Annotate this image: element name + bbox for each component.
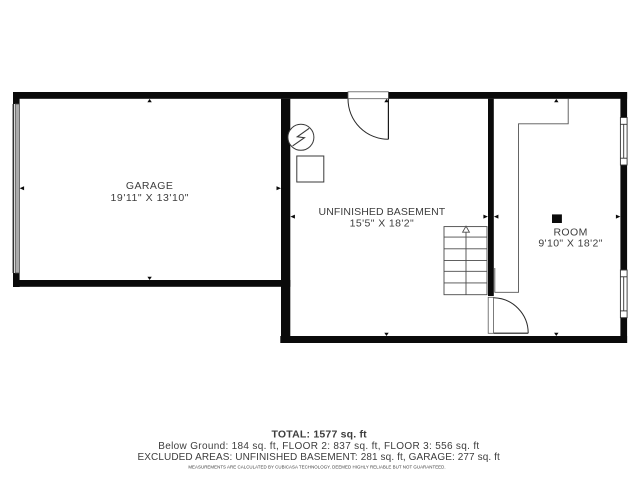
svg-text:9'10" X 18'2": 9'10" X 18'2" — [538, 238, 603, 250]
svg-text:15'5" X 18'2": 15'5" X 18'2" — [350, 218, 415, 230]
svg-text:Below Ground: 184 sq. ft, FLOO: Below Ground: 184 sq. ft, FLOOR 2: 837 s… — [158, 441, 479, 452]
svg-text:GARAGE: GARAGE — [126, 180, 173, 192]
svg-text:TOTAL: 1577 sq. ft: TOTAL: 1577 sq. ft — [271, 428, 367, 440]
svg-text:UNFINISHED BASEMENT: UNFINISHED BASEMENT — [319, 206, 446, 218]
svg-text:MEASUREMENTS ARE CALCULATED BY: MEASUREMENTS ARE CALCULATED BY CUBICASA … — [188, 465, 445, 470]
svg-text:EXCLUDED AREAS: UNFINISHED BAS: EXCLUDED AREAS: UNFINISHED BASEMENT: 281… — [138, 452, 500, 463]
svg-text:19'11" X 13'10": 19'11" X 13'10" — [111, 192, 190, 204]
